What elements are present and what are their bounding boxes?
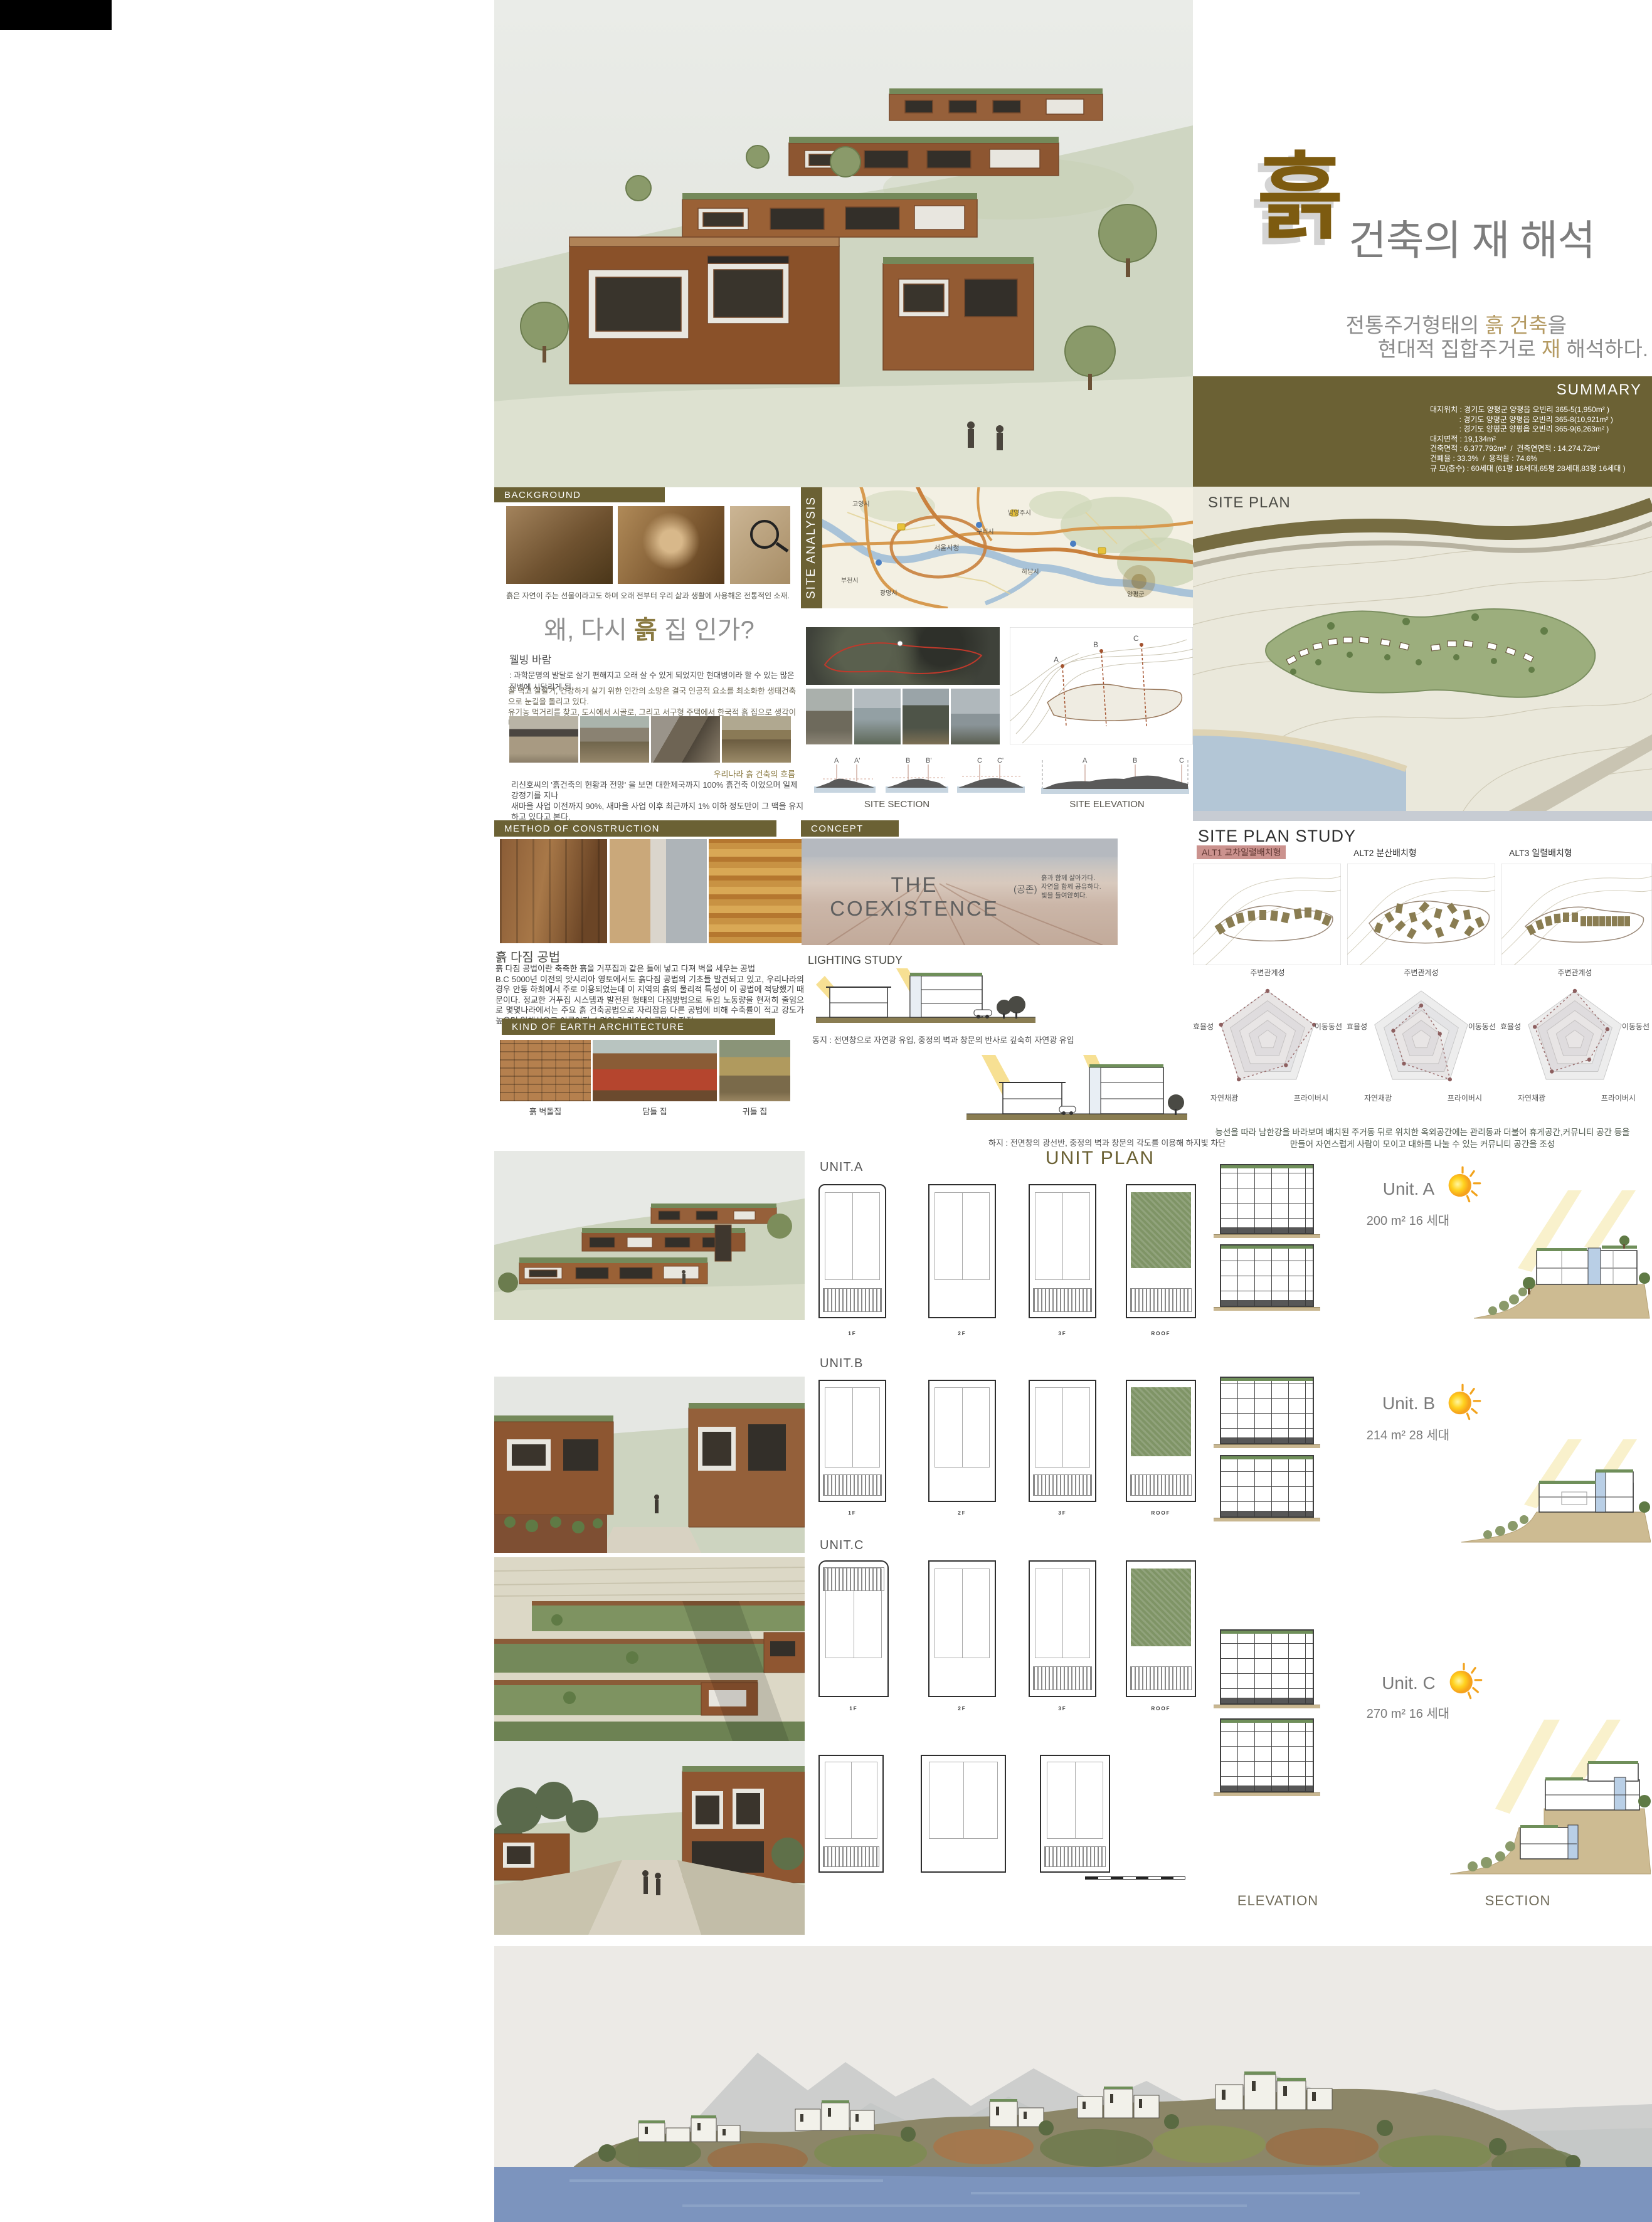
unit-b-section [1461, 1439, 1651, 1545]
panorama-render [494, 1946, 1652, 2222]
unit-c-label: UNIT.C [820, 1538, 864, 1553]
radar-chart-alt3: 주변관계성 효율성 이동동선 자연채광 프라이버시 [1500, 967, 1649, 1111]
scale-bar [1085, 1876, 1185, 1880]
background-caption: 흙은 자연이 주는 선물이라고도 하며 오래 전부터 우리 삶과 생활에 사용해… [500, 590, 795, 601]
unit-a-elevation-2 [1220, 1244, 1314, 1307]
elevation-mark: C [1179, 757, 1184, 764]
elevation-mark: B [1133, 757, 1137, 764]
section-mark: A [834, 757, 839, 764]
map-label-yangpyeong: 양평군 [1127, 591, 1145, 598]
radar-axis-right: 이동동선 [1468, 1021, 1496, 1032]
unit-a-plan-1f [818, 1184, 886, 1318]
poster: 흙 건축의 재 해석 전통주거형태의 흙 건축을 현대적 집합주거로 재 해석하… [0, 0, 1652, 2222]
section-mark: C' [997, 757, 1003, 764]
region-map: 고양시 서울시청 부천시 광명시 구리시 남양주시 하남시 양평군 [822, 487, 1193, 608]
map-label-gwangmyeong: 광명시 [880, 590, 897, 597]
floor-label: ROOF [1126, 1706, 1196, 1711]
hanok-photo-2 [580, 716, 649, 763]
summary-line: 대지위치 : 경기도 양평군 양평읍 오빈리 365-5(1,950m² ) [1430, 405, 1626, 415]
section-mark: A' [854, 757, 860, 764]
section-mark: B [906, 757, 910, 764]
wellbeing-subhead: 웰빙 바람 [509, 651, 551, 667]
summary-line: : 경기도 양평군 양평읍 오빈리 365-9(6,263m² ) [1430, 425, 1626, 435]
section-mark: C [977, 757, 982, 764]
alt1-label: ALT1 교차일렬배치형 [1197, 845, 1286, 859]
method-subhead: 흙 다짐 공법 [495, 947, 560, 965]
ground-strip [1214, 1307, 1320, 1311]
subtitle-accent: 흙 건축 [1485, 314, 1547, 337]
floor-label: ROOF [1126, 1510, 1196, 1516]
hanok-photo-3 [651, 716, 720, 763]
ground-strip [1214, 1444, 1320, 1448]
radar-axis-bl: 자연채광 [1210, 1092, 1238, 1103]
lighting-study-label: LIGHTING STUDY [808, 954, 903, 967]
subtitle-text2: 을 [1548, 314, 1567, 337]
sun-icon [1443, 1383, 1483, 1423]
hanok-photo-1 [509, 716, 578, 763]
map-label-guri: 구리시 [977, 528, 994, 536]
site-photo-4 [951, 689, 1000, 744]
method-photo-2 [610, 839, 707, 943]
ground-strip [1214, 1518, 1320, 1521]
site-photo-2 [854, 689, 901, 744]
contour-mark-c: C [1133, 634, 1139, 643]
concept-side-text: 흙과 함께 살아가다. 자연을 함께 공유하다. 빛을 들여앉히다. [1041, 874, 1101, 900]
unit-c-plan-roof [1126, 1560, 1196, 1697]
flow-caption: 우리나라 흙 건축의 흐름 [627, 768, 795, 780]
elevation-mark: A [1083, 757, 1088, 764]
unit-a-section [1474, 1190, 1651, 1321]
site-elevation-label: SITE ELEVATION [1041, 799, 1173, 810]
kind-header: KIND OF EARTH ARCHITECTURE [502, 1018, 775, 1035]
map-label-goyang: 고양시 [852, 500, 870, 508]
soil-photo-2 [618, 506, 724, 584]
floor-label: ROOF [1126, 1331, 1196, 1336]
map-label-hanam: 하남시 [1022, 568, 1039, 576]
alt3-label: ALT3 일렬배치형 [1509, 847, 1572, 859]
summer-caption: 하지 : 전면창의 광선반, 중정의 벽과 창문의 각도를 이용해 하지빛 차단 [988, 1136, 1226, 1148]
radar-axis-left: 효율성 [1347, 1021, 1367, 1032]
radar-axis-br: 프라이버시 [1448, 1092, 1482, 1103]
concept-paren: (공존) [1014, 882, 1037, 896]
ground-strip [1214, 1705, 1320, 1708]
render-courtyard [494, 1377, 805, 1553]
floor-label: 1F [818, 1510, 886, 1516]
unit-c-plan-3f [1029, 1560, 1096, 1697]
why-paragraph-3: 리신호씨의 '흙건축의 현황과 전망' 을 보면 대한제국까지 100% 흙건축… [511, 780, 805, 822]
radar-chart-alt1: 주변관계성 효율성 이동동선 자연채광 프라이버시 [1193, 967, 1342, 1111]
unit-b-label: UNIT.B [820, 1357, 863, 1371]
soil-photo-1 [506, 506, 613, 584]
kind-label-1: 흙 벽돌집 [500, 1105, 591, 1117]
unit-a-size: 200 m² 16 세대 [1323, 1210, 1493, 1229]
ground-strip [1214, 1792, 1320, 1796]
unit-b-plan-2f [928, 1380, 996, 1502]
lighting-diagram-summer [966, 1055, 1187, 1124]
unit-b-elevation-1 [1220, 1377, 1314, 1444]
alt3-panel [1501, 864, 1652, 965]
render-street [494, 1741, 805, 1935]
floor-label: 3F [1029, 1510, 1096, 1516]
section-mark: B' [926, 757, 931, 764]
unit-c-plan-lower-2 [921, 1755, 1006, 1873]
unit-c-section [1450, 1720, 1651, 1876]
subtitle-accent2: 재 [1542, 337, 1560, 361]
why-title-pre: 왜, 다시 [544, 616, 634, 644]
concept-image: THE COEXISTENCE (공존) 흙과 함께 살아가다. 자연을 함께 … [802, 839, 1118, 945]
radar-axis-right: 이동동선 [1315, 1021, 1342, 1032]
summary-line: 건축면적 : 6,377.792m² / 건축연면적 : 14,274.72m² [1430, 444, 1626, 454]
floor-label: 1F [818, 1331, 886, 1336]
site-plan-drawing [1193, 487, 1652, 812]
map-label-seoul: 서울시청 [934, 544, 959, 552]
radar-axis-bl: 자연채광 [1364, 1092, 1392, 1103]
sps-title: SITE PLAN STUDY [1198, 827, 1356, 846]
unit-b-elevation-2 [1220, 1455, 1314, 1518]
corner-mark-top-left [0, 0, 112, 30]
earth-logo: 흙 [1257, 151, 1343, 245]
radar-axis-br: 프라이버시 [1601, 1092, 1636, 1103]
site-photo-3 [903, 689, 949, 744]
summary-title: SUMMARY [1557, 381, 1642, 399]
contour-study: A B C [1010, 627, 1193, 744]
method-body: 흙 다짐 공법이란 축축한 흙을 거푸집과 같은 틀에 넣고 다져 벽을 세우는… [495, 964, 804, 1026]
map-label-namyangju: 남양주시 [1008, 509, 1031, 517]
unit-c-elevation-1 [1220, 1629, 1314, 1705]
unit-c-plan-lower-3 [1040, 1755, 1110, 1873]
radar-chart-alt2: 주변관계성 효율성 이동동선 자연채광 프라이버시 [1347, 967, 1496, 1111]
contour-mark-b: B [1093, 640, 1098, 649]
subtitle-text: 전통주거형태의 [1346, 314, 1485, 337]
floor-label: 3F [1029, 1331, 1096, 1336]
alt1-panel [1193, 864, 1341, 965]
subtitle-text3: 현대적 집합주거로 [1378, 337, 1542, 361]
unit-b-plan-roof [1126, 1380, 1196, 1502]
summary-panel: SUMMARY 대지위치 : 경기도 양평군 양평읍 오빈리 365-5(1,9… [1193, 376, 1652, 487]
floor-label: 3F [1029, 1706, 1096, 1711]
background-header: BACKGROUND [494, 487, 665, 502]
summary-line: 대지면적 : 19,134m² [1430, 435, 1626, 445]
soil-photo-3 [730, 506, 790, 584]
satellite-photo [806, 627, 1000, 685]
radar-axis-br: 프라이버시 [1294, 1092, 1328, 1103]
site-photo-1 [806, 689, 852, 744]
floor-label: 2F [928, 1331, 996, 1336]
unit-c-size: 270 m² 16 세대 [1323, 1703, 1493, 1722]
unit-b-plan-3f [1029, 1380, 1096, 1502]
site-sections: A A' B B' C C' A B C [804, 755, 1193, 795]
radar-axis-bl: 자연채광 [1518, 1092, 1545, 1103]
method-photo-3 [709, 839, 802, 943]
site-plan-label: SITE PLAN [1208, 494, 1291, 512]
subtitle-line1: 전통주거형태의 흙 건축을 [1254, 314, 1648, 337]
unit-c-elevation-2 [1220, 1718, 1314, 1792]
summary-line: : 경기도 양평군 양평읍 오빈리 365-8(10,921m² ) [1430, 415, 1626, 425]
render-roofscape [494, 1557, 805, 1741]
contour-mark-a: A [1054, 655, 1059, 664]
page-subtitle: 전통주거형태의 흙 건축을 현대적 집합주거로 재 해석하다. [1254, 314, 1648, 361]
render-terraces [494, 1151, 805, 1320]
kind-label-2: 담틀 집 [593, 1105, 717, 1117]
site-analysis-vertical-label: SITE ANALYSIS [801, 487, 822, 608]
sps-caption: 능선을 따라 남한강을 바라보며 배치된 주거동 뒤로 위치한 옥외공간에는 관… [1198, 1126, 1647, 1150]
kind-label-3: 귀틀 집 [719, 1105, 790, 1117]
subtitle-text4: 해석하다. [1560, 337, 1648, 361]
summary-line: 건폐율 : 33.3% / 용적율 : 74.6% [1430, 454, 1626, 464]
subtitle-line2: 현대적 집합주거로 재 해석하다. [1254, 337, 1648, 361]
floor-label: 2F [928, 1706, 996, 1711]
unit-a-plan-3f [1029, 1184, 1096, 1318]
lighting-diagram-winter [816, 968, 1035, 1026]
elevation-label: ELEVATION [1220, 1893, 1336, 1909]
method-header: METHOD OF CONSTRUCTION [494, 820, 776, 837]
sun-icon [1444, 1662, 1484, 1702]
sps-divider [1193, 811, 1652, 821]
unit-c-plan-lower-1 [818, 1755, 884, 1873]
unit-b-plan-1f [818, 1380, 886, 1502]
kind-photo-2 [593, 1040, 717, 1101]
summary-line: 규 모(층수) : 60세대 (61평 16세대,65평 28세대,83평 16… [1430, 464, 1626, 474]
why-title-accent: 흙 [634, 616, 657, 644]
unit-a-elevation-1 [1220, 1164, 1314, 1234]
kind-photo-1 [500, 1040, 591, 1101]
site-section-label: SITE SECTION [834, 799, 960, 810]
alt2-label: ALT2 분산배치형 [1353, 847, 1417, 859]
unit-c-plan-2f [928, 1560, 996, 1697]
alt2-panel [1347, 864, 1495, 965]
unit-a-plan-2f [928, 1184, 996, 1318]
concept-header: CONCEPT [801, 820, 899, 837]
concept-title: THE COEXISTENCE [820, 873, 1009, 921]
radar-axis-right: 이동동선 [1622, 1021, 1649, 1032]
radar-axis-left: 효율성 [1193, 1021, 1214, 1032]
unit-plan-title: UNIT PLAN [1037, 1148, 1163, 1169]
floor-label: 1F [818, 1706, 889, 1711]
hero-render [494, 0, 1193, 487]
method-photo-1 [500, 839, 607, 943]
magnifier-icon [750, 520, 779, 549]
page-title: 건축의 재 해석 [1348, 207, 1652, 267]
map-label-bucheon: 부천시 [841, 577, 859, 585]
floor-label: 2F [928, 1510, 996, 1516]
unit-a-label: UNIT.A [820, 1160, 863, 1175]
ground-strip [1214, 1234, 1320, 1238]
unit-c-plan-1f [818, 1560, 889, 1697]
section-label: SECTION [1458, 1893, 1577, 1909]
summary-lines: 대지위치 : 경기도 양평군 양평읍 오빈리 365-5(1,950m² ) :… [1430, 405, 1626, 473]
unit-a-plan-roof [1126, 1184, 1196, 1318]
winter-caption: 동지 : 전면창으로 자연광 유입, 중정의 벽과 창문의 반사로 깊숙히 자연… [812, 1034, 1074, 1045]
why-title-post: 집 인가? [657, 616, 755, 644]
why-title: 왜, 다시 흙 집 인가? [514, 610, 784, 646]
radar-axis-left: 효율성 [1500, 1021, 1521, 1032]
kind-photo-3 [719, 1040, 790, 1101]
hanok-photo-4 [722, 716, 791, 763]
